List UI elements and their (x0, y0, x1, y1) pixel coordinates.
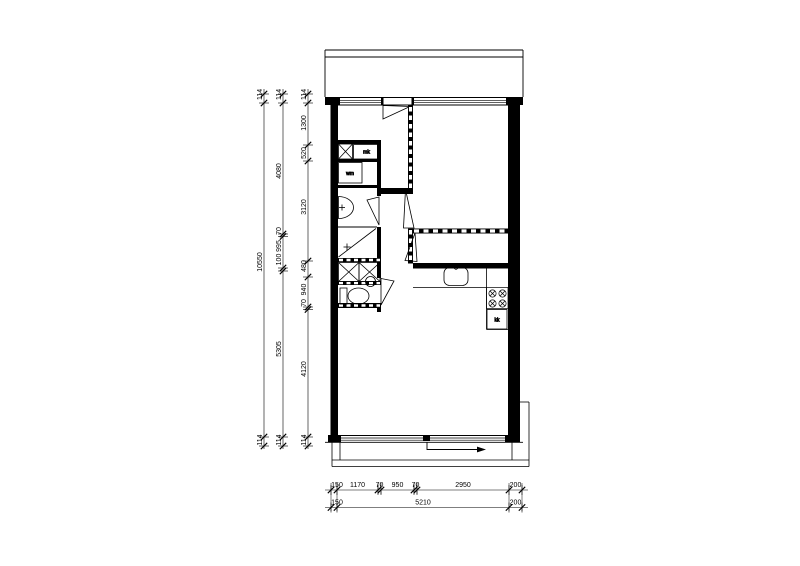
dim-label: 100 (276, 254, 283, 266)
dim-label: 200 (510, 500, 522, 507)
dim-label: 114 (257, 89, 264, 100)
dim-label: 4080 (276, 163, 283, 179)
dim-label: 200 (510, 482, 522, 489)
wall-stub-bottom-left (328, 435, 341, 442)
dim-label: 5305 (276, 341, 283, 357)
dim-label: 70 (276, 227, 283, 235)
dim-label: 1300 (301, 115, 308, 131)
wall-stub-bottom-right (505, 435, 520, 442)
exterior-wall-left (331, 98, 339, 443)
dim-label: 3120 (301, 199, 308, 215)
dim-label: 70 (376, 482, 384, 489)
floor-plan-drawing: mk wm (0, 0, 800, 566)
dim-label: 150 (331, 482, 343, 489)
washing-machine-label: wm (346, 171, 354, 177)
dim-label: 70 (301, 299, 308, 307)
dim-label: 4120 (301, 361, 308, 377)
dim-label: 995 (276, 240, 283, 252)
dim-label: 114 (276, 434, 283, 445)
wall-stub-top-left (325, 98, 340, 106)
door-jamb (381, 98, 384, 106)
dim-label: 114 (301, 434, 308, 445)
meter-cupboard-label: mk (363, 150, 370, 156)
dim-label: 114 (257, 434, 264, 445)
dim-label: 480 (301, 260, 308, 272)
corridor-stub-wall (378, 188, 413, 194)
dim-label: 150 (331, 500, 343, 507)
dim-label: 114 (301, 89, 308, 100)
dim-label: 1170 (350, 482, 365, 489)
door-jamb (412, 98, 415, 106)
exterior-wall-right (508, 98, 520, 441)
dim-label: 2950 (455, 482, 471, 489)
wall-stub-top-right (506, 98, 523, 106)
dim-label: 520 (301, 147, 308, 159)
floor-plan-page: mk wm (0, 0, 800, 566)
dim-label: 10550 (257, 252, 264, 272)
dim-label: 950 (392, 482, 404, 489)
dim-label: 70 (412, 482, 420, 489)
dim-label: 114 (276, 89, 283, 100)
window-meeting-stile (423, 436, 430, 441)
fridge-label: kk (495, 318, 501, 324)
dim-label: 940 (301, 284, 308, 296)
dim-label: 5210 (415, 500, 431, 507)
